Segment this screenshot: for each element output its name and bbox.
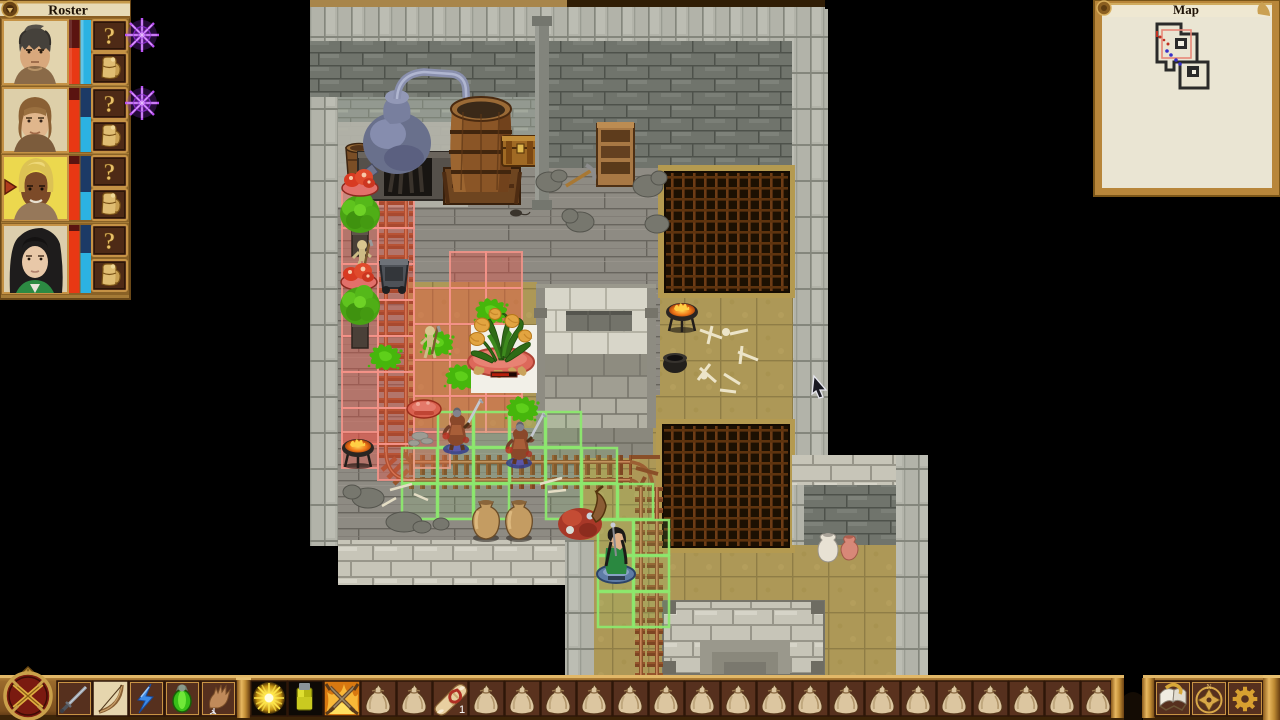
svg-text:1: 1 (459, 704, 465, 716)
svg-text:Map: Map (1173, 2, 1199, 17)
svg-text:Roster: Roster (48, 4, 88, 19)
svg-text:N: N (1206, 683, 1211, 691)
